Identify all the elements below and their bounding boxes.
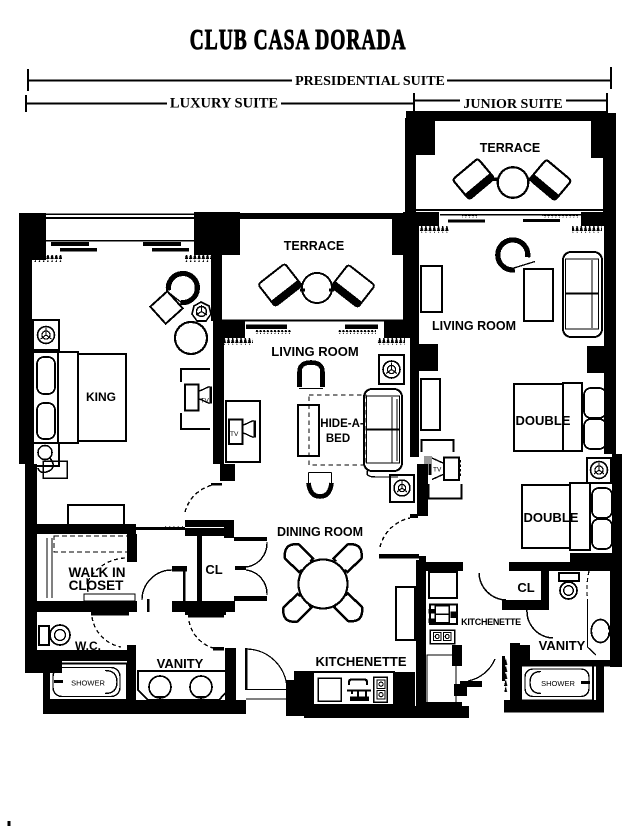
svg-text:JUNIOR SUITE: JUNIOR SUITE <box>463 97 562 112</box>
svg-text:BED: BED <box>326 433 350 445</box>
svg-text:W.C.: W.C. <box>75 639 101 653</box>
svg-text:TV: TV <box>230 431 239 438</box>
svg-text:PRESIDENTIAL SUITE: PRESIDENTIAL SUITE <box>295 74 445 89</box>
svg-text:TERRACE: TERRACE <box>480 141 540 155</box>
svg-text:LUXURY SUITE: LUXURY SUITE <box>170 96 278 112</box>
svg-text:VANITY: VANITY <box>157 656 204 671</box>
svg-text:LIVING ROOM: LIVING ROOM <box>432 319 516 333</box>
svg-text:VANITY: VANITY <box>539 638 586 653</box>
svg-text:DINING ROOM: DINING ROOM <box>277 525 363 539</box>
svg-text:SHOWER: SHOWER <box>541 679 575 688</box>
svg-text:DOUBLE: DOUBLE <box>524 510 579 525</box>
svg-text:TV: TV <box>433 467 442 474</box>
svg-text:HIDE-A-: HIDE-A- <box>320 418 364 430</box>
svg-text:TV: TV <box>201 398 210 405</box>
svg-text:LIVING ROOM: LIVING ROOM <box>271 344 358 359</box>
svg-text:TERRACE: TERRACE <box>284 239 344 253</box>
svg-text:KING: KING <box>86 390 116 404</box>
svg-text:KITCHENETTE: KITCHENETTE <box>316 654 407 669</box>
svg-text:SHOWER: SHOWER <box>71 679 105 688</box>
svg-text:CL: CL <box>205 562 222 577</box>
svg-text:KITCHENETTE: KITCHENETTE <box>461 617 521 627</box>
svg-text:CLUB CASA DORADA: CLUB CASA DORADA <box>190 24 407 56</box>
svg-text:CL: CL <box>517 580 534 595</box>
svg-text:DOUBLE: DOUBLE <box>516 413 571 428</box>
svg-text:CLOSET: CLOSET <box>69 578 125 593</box>
